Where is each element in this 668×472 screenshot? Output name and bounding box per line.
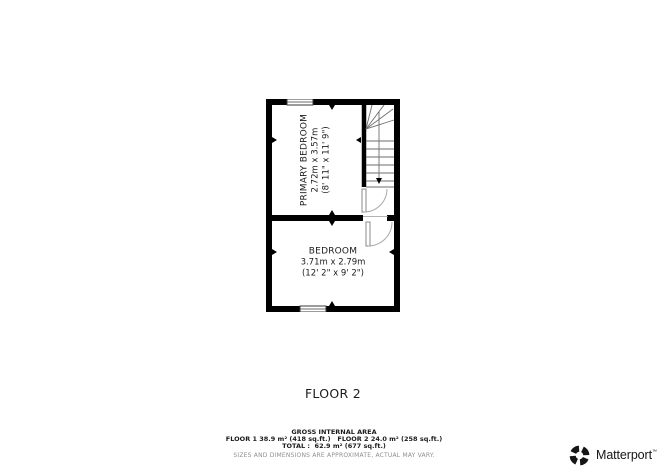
- room-dimensions-metric: 2.72m x 3.57m: [311, 114, 322, 206]
- floor-title: FLOOR 2: [305, 386, 361, 401]
- floorplan-drawing: [266, 99, 400, 312]
- room-dimensions-imperial: (12' 2" x 9' 2"): [301, 269, 366, 280]
- trademark-symbol: ™: [652, 449, 657, 455]
- matterport-wordmark-text: Matterport: [596, 448, 652, 462]
- matterport-logo: Matterport™: [569, 444, 657, 466]
- room-label-primary-bedroom: PRIMARY BEDROOM 2.72m x 3.57m (8' 11" x …: [300, 114, 333, 206]
- matterport-icon: [569, 445, 590, 466]
- room-label-bedroom: BEDROOM 3.71m x 2.79m (12' 2" x 9' 2"): [301, 247, 366, 280]
- stair-door-leaf: [362, 189, 366, 212]
- window-bottom: [300, 306, 326, 312]
- room-name: PRIMARY BEDROOM: [300, 114, 311, 206]
- floorplan-page: { "floorplan": { "rooms": [ { "name": "P…: [0, 0, 668, 472]
- bedroom-door-leaf: [366, 222, 370, 246]
- floorplan: PRIMARY BEDROOM 2.72m x 3.57m (8' 11" x …: [266, 99, 400, 312]
- disclaimer-text: SIZES AND DIMENSIONS ARE APPROXIMATE, AC…: [0, 452, 668, 459]
- room-name: BEDROOM: [301, 247, 366, 258]
- window-top: [287, 99, 313, 105]
- room-dimensions-metric: 3.71m x 2.79m: [301, 258, 366, 269]
- total-area-line: TOTAL : 62.9 m² (677 sq.ft.): [0, 443, 668, 450]
- matterport-wordmark: Matterport™: [596, 448, 657, 462]
- area-summary: GROSS INTERNAL AREA FLOOR 1 38.9 m² (418…: [0, 429, 668, 459]
- room-dimensions-imperial: (8' 11" x 11' 9"): [322, 114, 333, 206]
